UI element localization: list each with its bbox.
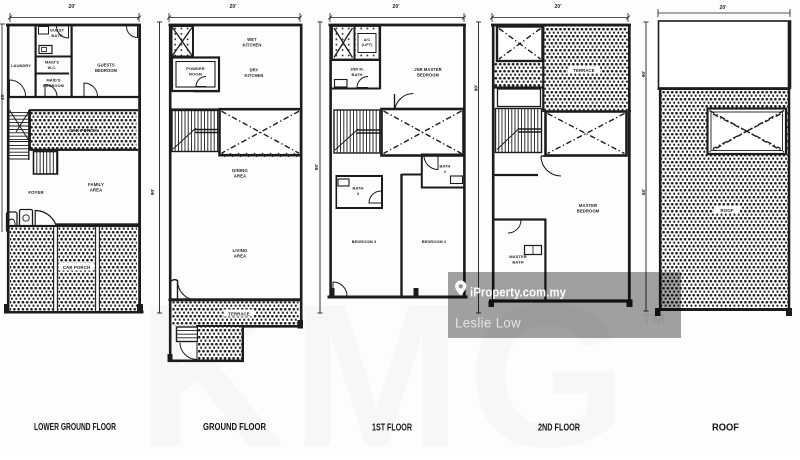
svg-text:iProperty.com.my: iProperty.com.my: [470, 285, 567, 300]
svg-text:1ST FLOOR: 1ST FLOOR: [372, 422, 412, 434]
svg-text:JNR M.BATH: JNR M.BATH: [350, 67, 364, 77]
svg-text:FAMILYAREA: FAMILYAREA: [88, 182, 104, 193]
svg-text:45': 45': [0, 94, 5, 100]
svg-text:JNR MASTERBEDROOM: JNR MASTERBEDROOM: [414, 67, 442, 78]
svg-text:BEDROOM 3: BEDROOM 3: [352, 239, 377, 244]
svg-text:CAR PORCH: CAR PORCH: [69, 128, 97, 133]
svg-text:ROOF: ROOF: [720, 208, 733, 213]
svg-text:20': 20': [392, 4, 399, 10]
svg-text:ROOF: ROOF: [712, 422, 740, 434]
svg-text:CAR PORCH: CAR PORCH: [63, 265, 91, 270]
svg-text:65': 65': [641, 189, 647, 195]
svg-text:LAUNDRY: LAUNDRY: [11, 63, 31, 68]
svg-text:90': 90': [641, 71, 647, 77]
svg-text:LIVINGAREA: LIVINGAREA: [233, 248, 248, 259]
svg-text:TERRACE: TERRACE: [573, 68, 595, 73]
svg-text:20': 20': [68, 4, 75, 10]
svg-text:20': 20': [719, 5, 726, 11]
svg-text:Leslie Low: Leslie Low: [455, 316, 521, 331]
svg-text:GROUND FLOOR: GROUND FLOOR: [203, 421, 266, 433]
svg-text:DININGAREA: DININGAREA: [232, 168, 248, 179]
svg-text:90': 90': [314, 164, 320, 170]
svg-text:20': 20': [554, 4, 561, 10]
svg-text:20': 20': [229, 4, 236, 10]
svg-text:90': 90': [150, 189, 156, 195]
svg-text:GUESTSBEDROOM: GUESTSBEDROOM: [95, 63, 118, 74]
svg-text:TERRACE: TERRACE: [228, 312, 250, 317]
svg-text:FOYER: FOYER: [28, 190, 44, 195]
svg-text:LOWER GROUND FLOOR: LOWER GROUND FLOOR: [34, 421, 116, 433]
svg-text:2ND FLOOR: 2ND FLOOR: [538, 422, 580, 434]
svg-text:MASTERBEDROOM: MASTERBEDROOM: [577, 203, 600, 214]
svg-text:90': 90': [474, 85, 480, 91]
svg-text:BEDROOM 2: BEDROOM 2: [422, 239, 447, 244]
